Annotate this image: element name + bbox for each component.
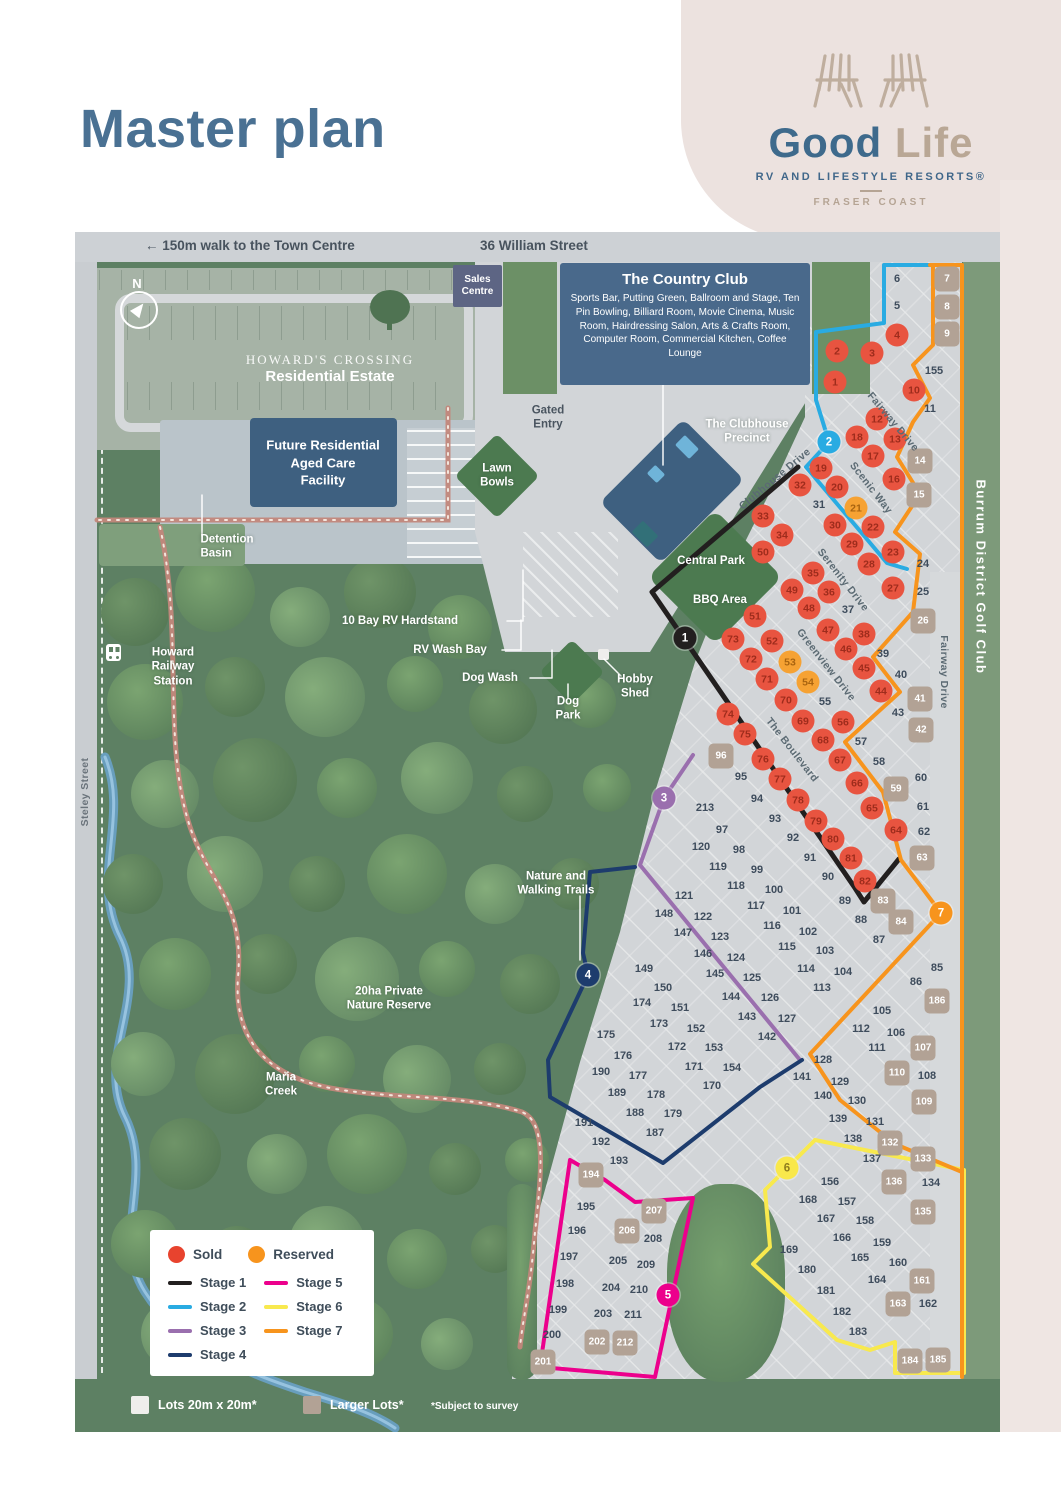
- lot-114: 114: [797, 963, 815, 975]
- reserved-label: Reserved: [273, 1247, 334, 1262]
- lot-165: 165: [851, 1252, 869, 1264]
- lot-39: 39: [877, 648, 889, 660]
- lot-71: 71: [756, 668, 779, 691]
- lot-68: 68: [812, 729, 835, 752]
- dog-wash-label: Dog Wash: [462, 671, 518, 685]
- lot-192: 192: [592, 1136, 610, 1148]
- lot-6: 6: [894, 273, 900, 285]
- lot-84: 84: [889, 910, 914, 935]
- lot-97: 97: [716, 824, 728, 836]
- lot-64: 64: [885, 819, 908, 842]
- lot-49: 49: [781, 579, 804, 602]
- lot-153: 153: [705, 1042, 723, 1054]
- lot-8: 8: [935, 295, 960, 320]
- lot-145: 145: [706, 968, 724, 980]
- lot-66: 66: [846, 772, 869, 795]
- lot-88: 88: [855, 914, 867, 926]
- lot-100: 100: [765, 884, 783, 896]
- lot-162: 162: [919, 1298, 937, 1310]
- lot-160: 160: [889, 1257, 907, 1269]
- lot-23: 23: [882, 541, 905, 564]
- lot-174: 174: [633, 997, 651, 1009]
- lot-213: 213: [696, 802, 714, 814]
- lot-178: 178: [647, 1089, 665, 1101]
- lot-179: 179: [664, 1108, 682, 1120]
- clubhouse-precinct-label: The Clubhouse Precinct: [705, 418, 788, 447]
- stage-marker-5: 5: [657, 1284, 680, 1307]
- howards-crossing-label: HOWARD'S CROSSING Residential Estate: [246, 352, 414, 385]
- stage-marker-7: 7: [930, 902, 953, 925]
- adirondack-chairs-icon: [811, 50, 931, 112]
- lot-176: 176: [614, 1050, 632, 1062]
- lot-76: 76: [752, 748, 775, 771]
- lot-17: 17: [862, 445, 885, 468]
- lot-63: 63: [910, 846, 935, 871]
- lot-181: 181: [817, 1285, 835, 1297]
- detention-basin-label: Detention Basin: [200, 533, 253, 562]
- map: 1234567891011155121314151617181920212223…: [75, 232, 1000, 1432]
- lot-5: 5: [894, 300, 900, 312]
- lot-57: 57: [855, 736, 867, 748]
- howard-railway-station-label: Howard Railway Station: [152, 645, 195, 688]
- lot-212: 212: [613, 1331, 638, 1356]
- stage-1-swatch: [168, 1281, 192, 1285]
- stage-7-swatch: [264, 1329, 288, 1333]
- logo-divider: [860, 190, 882, 192]
- lot-106: 106: [887, 1027, 905, 1039]
- lot-93: 93: [769, 813, 781, 825]
- lot-205: 205: [609, 1255, 627, 1267]
- lot-29: 29: [841, 533, 864, 556]
- lot-201: 201: [531, 1350, 556, 1375]
- lot-209: 209: [637, 1259, 655, 1271]
- stage-5-swatch: [264, 1281, 288, 1285]
- lot-95: 95: [735, 771, 747, 783]
- lot-172: 172: [668, 1041, 686, 1053]
- lot-94: 94: [751, 793, 763, 805]
- lot-163: 163: [886, 1292, 911, 1317]
- lot-59: 59: [884, 777, 909, 802]
- lot-132: 132: [878, 1131, 903, 1156]
- central-park-label: Central Park: [677, 554, 745, 568]
- lot-62: 62: [918, 826, 930, 838]
- compass-north-label: N: [132, 276, 141, 291]
- lot-175: 175: [597, 1029, 615, 1041]
- lot-144: 144: [722, 991, 740, 1003]
- lot-50: 50: [752, 541, 775, 564]
- lot-180: 180: [798, 1264, 816, 1276]
- lot-103: 103: [816, 945, 834, 957]
- lot-204: 204: [602, 1282, 620, 1294]
- lot-91: 91: [804, 852, 816, 864]
- legend-stages-col1: Stage 1Stage 2Stage 3Stage 4: [168, 1275, 246, 1362]
- lot-186: 186: [925, 989, 950, 1014]
- lot-157: 157: [838, 1196, 856, 1208]
- legend-stage-6: Stage 6: [264, 1299, 342, 1314]
- stage-3-swatch: [168, 1329, 192, 1333]
- lot-104: 104: [834, 966, 852, 978]
- lot-81: 81: [840, 847, 863, 870]
- lot-34: 34: [771, 524, 794, 547]
- legend-stage-5: Stage 5: [264, 1275, 342, 1290]
- lot-159: 159: [873, 1237, 891, 1249]
- lot-74: 74: [717, 703, 740, 726]
- lot-177: 177: [629, 1070, 647, 1082]
- legend-stage-3: Stage 3: [168, 1323, 246, 1338]
- survey-note: *Subject to survey: [431, 1401, 518, 1412]
- lot-89: 89: [839, 895, 851, 907]
- standard-lot-label: Lots 20m x 20m*: [158, 1398, 257, 1412]
- lot-108: 108: [918, 1070, 936, 1082]
- lot-194: 194: [579, 1163, 604, 1188]
- lot-72: 72: [740, 648, 763, 671]
- lot-3: 3: [861, 342, 884, 365]
- larger-lot-swatch: [303, 1396, 321, 1414]
- lot-99: 99: [751, 864, 763, 876]
- lot-173: 173: [650, 1018, 668, 1030]
- lot-43: 43: [892, 707, 904, 719]
- lot-53: 53: [779, 651, 802, 674]
- lot-30: 30: [824, 514, 847, 537]
- stage-marker-6: 6: [776, 1157, 799, 1180]
- lot-136: 136: [882, 1170, 907, 1195]
- lot-69: 69: [792, 710, 815, 733]
- reserved-dot: [248, 1246, 265, 1263]
- lot-167: 167: [817, 1213, 835, 1225]
- lot-131: 131: [866, 1116, 884, 1128]
- lot-45: 45: [853, 657, 876, 680]
- lot-51: 51: [744, 605, 767, 628]
- lot-10: 10: [903, 379, 926, 402]
- legend-stage-label: Stage 4: [200, 1347, 246, 1362]
- lot-1: 1: [824, 371, 847, 394]
- lot-121: 121: [675, 890, 693, 902]
- lot-127: 127: [778, 1013, 796, 1025]
- lot-113: 113: [813, 982, 831, 994]
- legend-stage-label: Stage 1: [200, 1275, 246, 1290]
- lot-199: 199: [549, 1304, 567, 1316]
- lot-37: 37: [842, 604, 854, 616]
- lot-125: 125: [743, 972, 761, 984]
- lot-60: 60: [915, 772, 927, 784]
- legend-stage-4: Stage 4: [168, 1347, 246, 1362]
- lot-107: 107: [911, 1036, 936, 1061]
- lot-7: 7: [935, 267, 960, 292]
- lot-119: 119: [709, 861, 727, 873]
- logo-wordmark: Good Life: [736, 119, 1006, 167]
- legend-stages-col2: Stage 5Stage 6Stage 7: [264, 1275, 342, 1362]
- lot-24: 24: [917, 558, 929, 570]
- lot-116: 116: [763, 920, 781, 932]
- lot-164: 164: [868, 1274, 886, 1286]
- lot-196: 196: [568, 1225, 586, 1237]
- street-steley: Steley Street: [79, 758, 91, 827]
- lot-79: 79: [805, 810, 828, 833]
- bbq-area-label: BBQ Area: [693, 593, 747, 607]
- lot-142: 142: [758, 1031, 776, 1043]
- lot-185: 185: [926, 1348, 951, 1373]
- page-title: Master plan: [80, 98, 386, 160]
- lot-20: 20: [826, 476, 849, 499]
- lot-130: 130: [848, 1095, 866, 1107]
- lot-56: 56: [832, 711, 855, 734]
- lot-198: 198: [556, 1278, 574, 1290]
- lot-138: 138: [844, 1133, 862, 1145]
- lot-147: 147: [674, 927, 692, 939]
- lot-170: 170: [703, 1080, 721, 1092]
- lot-22: 22: [862, 516, 885, 539]
- lot-203: 203: [594, 1308, 612, 1320]
- rv-hardstand-label: 10 Bay RV Hardstand: [342, 614, 458, 628]
- lot-154: 154: [723, 1062, 741, 1074]
- lot-98: 98: [733, 844, 745, 856]
- lot-122: 122: [694, 911, 712, 923]
- legend-reserved: Reserved: [248, 1246, 334, 1263]
- lot-161: 161: [910, 1269, 935, 1294]
- lot-9: 9: [935, 322, 960, 347]
- lot-38: 38: [853, 623, 876, 646]
- lot-102: 102: [799, 926, 817, 938]
- lot-206: 206: [615, 1219, 640, 1244]
- lot-46: 46: [835, 638, 858, 661]
- lot-35: 35: [802, 562, 825, 585]
- lot-126: 126: [761, 992, 779, 1004]
- lot-202: 202: [585, 1330, 610, 1355]
- legend-stage-label: Stage 6: [296, 1299, 342, 1314]
- lot-141: 141: [793, 1071, 811, 1083]
- lot-143: 143: [738, 1011, 756, 1023]
- legend-stage-7: Stage 7: [264, 1323, 342, 1338]
- lot-210: 210: [630, 1284, 648, 1296]
- pink-side-margin: [1000, 180, 1061, 1432]
- lot-152: 152: [687, 1023, 705, 1035]
- lot-111: 111: [868, 1042, 885, 1054]
- lot-110: 110: [885, 1061, 910, 1086]
- lot-155: 155: [925, 365, 943, 377]
- dog-park-label: Dog Park: [556, 695, 581, 724]
- lot-166: 166: [833, 1232, 851, 1244]
- lot-118: 118: [727, 880, 745, 892]
- lot-28: 28: [858, 553, 881, 576]
- lot-85: 85: [931, 962, 943, 974]
- lot-75: 75: [734, 723, 757, 746]
- stage-2-swatch: [168, 1305, 192, 1309]
- lot-109: 109: [912, 1090, 937, 1115]
- lot-139: 139: [829, 1113, 847, 1125]
- legend-sold: Sold: [168, 1246, 222, 1263]
- stage-marker-2: 2: [818, 431, 841, 454]
- lot-67: 67: [829, 749, 852, 772]
- legend-stage-2: Stage 2: [168, 1299, 246, 1314]
- stage-6-swatch: [264, 1305, 288, 1309]
- lot-65: 65: [861, 797, 884, 820]
- lot-61: 61: [917, 801, 929, 813]
- lot-58: 58: [873, 756, 885, 768]
- country-club-title: The Country Club: [570, 271, 800, 288]
- larger-lot-label: Larger Lots*: [330, 1398, 404, 1412]
- legend-stage-label: Stage 2: [200, 1299, 246, 1314]
- aged-care-label: Future Residential Aged Care Facility: [266, 437, 379, 490]
- lot-73: 73: [722, 628, 745, 651]
- maria-creek-label: Maria Creek: [265, 1071, 297, 1100]
- lawn-bowls-label: Lawn Bowls: [480, 462, 514, 491]
- lot-80: 80: [822, 828, 845, 851]
- lot-77: 77: [769, 768, 792, 791]
- lot-149: 149: [635, 963, 653, 975]
- legend-stage-label: Stage 5: [296, 1275, 342, 1290]
- lot-120: 120: [692, 841, 710, 853]
- street-fairway-drive-lower: Fairway Drive: [938, 635, 950, 709]
- lot-169: 169: [780, 1244, 798, 1256]
- lot-101: 101: [783, 905, 801, 917]
- hobby-shed-label: Hobby Shed: [617, 673, 653, 702]
- lot-105: 105: [873, 1005, 891, 1017]
- lot-191: 191: [575, 1117, 593, 1129]
- lot-47: 47: [817, 619, 840, 642]
- lot-140: 140: [814, 1090, 832, 1102]
- stage-marker-1: 1: [674, 627, 697, 650]
- lot-78: 78: [787, 789, 810, 812]
- lot-128: 128: [814, 1054, 832, 1066]
- footer-larger-lots-legend: Larger Lots*: [303, 1396, 404, 1414]
- lot-54: 54: [797, 671, 820, 694]
- lot-92: 92: [787, 832, 799, 844]
- lot-31: 31: [813, 499, 825, 511]
- legend: Sold Reserved Stage 1Stage 2Stage 3Stage…: [150, 1230, 374, 1376]
- compass-icon: [120, 291, 158, 329]
- lot-129: 129: [831, 1076, 849, 1088]
- lot-55: 55: [819, 696, 831, 708]
- standard-lot-swatch: [131, 1396, 149, 1414]
- lot-168: 168: [799, 1194, 817, 1206]
- sold-dot: [168, 1246, 185, 1263]
- lot-200: 200: [543, 1329, 561, 1341]
- lot-21: 21: [845, 497, 868, 520]
- lot-193: 193: [610, 1155, 628, 1167]
- lot-150: 150: [654, 982, 672, 994]
- stage-marker-4: 4: [577, 964, 600, 987]
- lot-96: 96: [709, 744, 734, 769]
- lot-11: 11: [924, 403, 936, 415]
- lot-112: 112: [852, 1023, 870, 1035]
- lot-42: 42: [909, 718, 934, 743]
- lot-187: 187: [646, 1127, 664, 1139]
- lot-40: 40: [895, 669, 907, 681]
- lot-195: 195: [577, 1201, 595, 1213]
- walk-to-town-label: ← 150m walk to the Town Centre: [145, 238, 355, 253]
- lot-211: 211: [624, 1309, 642, 1321]
- lot-15: 15: [907, 483, 932, 508]
- lot-2: 2: [826, 340, 849, 363]
- sales-centre-box: Sales Centre: [453, 265, 502, 307]
- lot-16: 16: [883, 468, 906, 491]
- gated-entry-label: Gated Entry: [532, 404, 565, 433]
- nature-walking-trails-label: Nature and Walking Trails: [518, 870, 595, 899]
- lot-4: 4: [886, 324, 909, 347]
- goodlife-logo: Good Life RV AND LIFESTYLE RESORTS® FRAS…: [736, 50, 1006, 208]
- lot-27: 27: [882, 577, 905, 600]
- legend-stage-label: Stage 3: [200, 1323, 246, 1338]
- lot-32: 32: [789, 474, 812, 497]
- lot-117: 117: [747, 900, 765, 912]
- lot-52: 52: [761, 630, 784, 653]
- lot-26: 26: [911, 609, 936, 634]
- logo-tagline: RV AND LIFESTYLE RESORTS®: [736, 171, 1006, 183]
- logo-region: FRASER COAST: [736, 197, 1006, 208]
- lot-184: 184: [898, 1349, 923, 1374]
- william-street-label: 36 William Street: [480, 238, 588, 253]
- lot-41: 41: [908, 687, 933, 712]
- lot-87: 87: [873, 934, 885, 946]
- lot-148: 148: [655, 908, 673, 920]
- lot-70: 70: [775, 689, 798, 712]
- stage-marker-3: 3: [653, 787, 676, 810]
- master-plan-page: Master plan Good Life RV AND LIFESTYLE R…: [0, 0, 1061, 1500]
- lot-90: 90: [822, 871, 834, 883]
- lot-86: 86: [910, 976, 922, 988]
- lot-183: 183: [849, 1326, 867, 1338]
- lot-158: 158: [856, 1215, 874, 1227]
- lot-133: 133: [911, 1147, 936, 1172]
- lot-36: 36: [818, 581, 841, 604]
- lot-124: 124: [727, 952, 745, 964]
- stage-4-swatch: [168, 1353, 192, 1357]
- rv-wash-bay-label: RV Wash Bay: [413, 643, 487, 657]
- lot-115: 115: [778, 941, 796, 953]
- lot-135: 135: [911, 1200, 936, 1225]
- lot-134: 134: [922, 1177, 940, 1189]
- lot-146: 146: [694, 948, 712, 960]
- lot-48: 48: [798, 597, 821, 620]
- train-station-icon: [106, 644, 121, 661]
- lot-151: 151: [671, 1002, 689, 1014]
- footer-lots-legend: Lots 20m x 20m*: [131, 1396, 257, 1414]
- lot-33: 33: [752, 505, 775, 528]
- lot-190: 190: [592, 1066, 610, 1078]
- lot-189: 189: [608, 1087, 626, 1099]
- legend-stage-label: Stage 7: [296, 1323, 342, 1338]
- nature-reserve-label: 20ha Private Nature Reserve: [347, 985, 431, 1014]
- lot-156: 156: [821, 1176, 839, 1188]
- country-club-box: The Country Club Sports Bar, Putting Gre…: [560, 263, 810, 385]
- lot-171: 171: [685, 1061, 703, 1073]
- legend-stage-1: Stage 1: [168, 1275, 246, 1290]
- country-club-facilities: Sports Bar, Putting Green, Ballroom and …: [570, 292, 800, 361]
- lot-44: 44: [870, 680, 893, 703]
- lot-208: 208: [644, 1233, 662, 1245]
- lot-18: 18: [846, 426, 869, 449]
- lot-137: 137: [863, 1153, 881, 1165]
- lot-25: 25: [917, 586, 929, 598]
- lot-197: 197: [560, 1251, 578, 1263]
- sold-label: Sold: [193, 1247, 222, 1262]
- lot-188: 188: [626, 1107, 644, 1119]
- lot-19: 19: [810, 457, 833, 480]
- golf-club-label: Burrum District Golf Club: [974, 480, 989, 675]
- lot-182: 182: [833, 1306, 851, 1318]
- lot-207: 207: [642, 1199, 667, 1224]
- lot-123: 123: [711, 931, 729, 943]
